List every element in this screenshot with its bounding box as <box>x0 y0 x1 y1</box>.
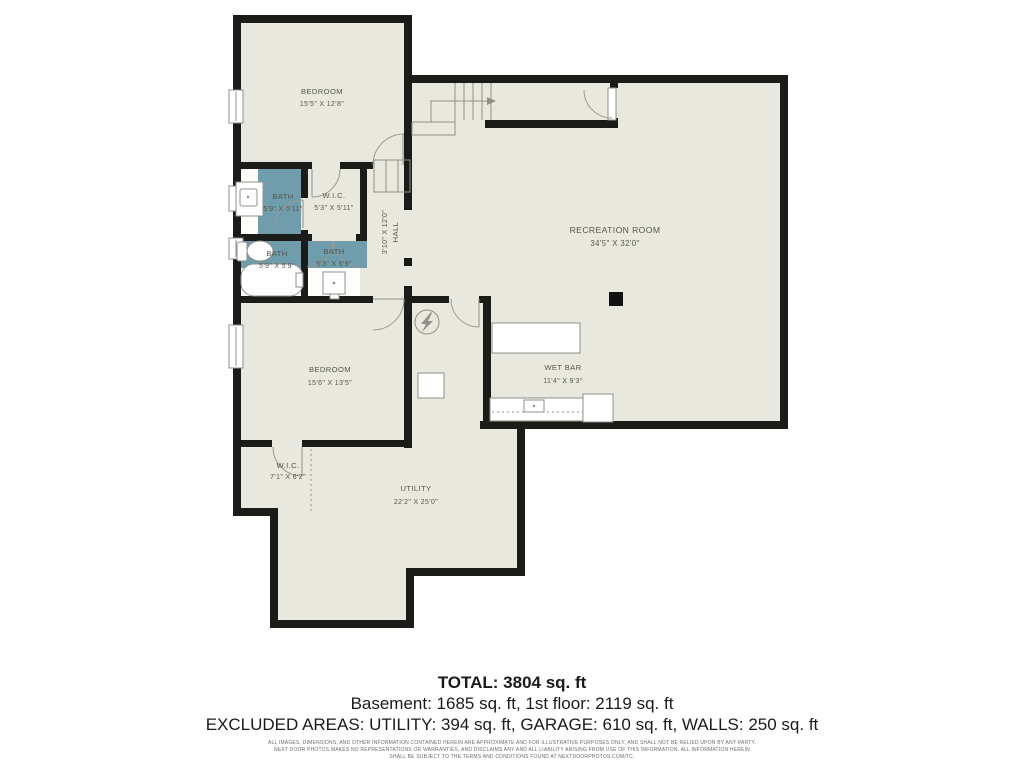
room-label: WET BAR <box>544 363 581 372</box>
disclaimer-line: NEXT DOOR PHOTOS MAKES NO REPRESENTATION… <box>0 747 1024 754</box>
opening-hall-rec2 <box>404 266 412 286</box>
room-label: BATH <box>272 192 293 201</box>
wall <box>485 120 618 128</box>
wall <box>233 440 412 447</box>
bar-sink-drain <box>533 405 535 407</box>
room-dims: 11'4" X 9'3" <box>543 378 583 385</box>
wall <box>301 234 308 300</box>
room-dims: 34'5" X 32'0" <box>590 239 639 248</box>
wall <box>480 421 788 429</box>
floor-plan-page: BEDROOM 15'5" X 12'8" BATH 5'9" X 5'11" … <box>0 0 1024 768</box>
wall <box>517 421 525 576</box>
wet-bar-island <box>492 323 580 353</box>
floor-plan-canvas: BEDROOM 15'5" X 12'8" BATH 5'9" X 5'11" … <box>0 0 1024 768</box>
room-dims: 3'10" X 12'0" <box>382 210 389 254</box>
bar-appliance <box>583 394 613 422</box>
room-label: BATH <box>266 249 287 258</box>
toilet-tank2 <box>330 294 339 299</box>
wall <box>406 568 414 628</box>
sink-drain <box>247 196 249 198</box>
tub-faucet <box>296 273 303 287</box>
room-dims: 5'9" X 5'11" <box>263 206 303 213</box>
disclaimer-line: SHALL BE SUBJECT TO THE TERMS AND CONDIT… <box>0 754 1024 761</box>
wall <box>270 620 414 628</box>
floor-areas-text: Basement: 1685 sq. ft, 1st floor: 2119 s… <box>0 693 1024 714</box>
room-label: BATH <box>323 247 344 256</box>
doorway-wic-lower <box>272 440 302 447</box>
room-label: RECREATION ROOM <box>570 225 661 235</box>
doorway-bath-upper <box>301 198 308 230</box>
wall <box>233 15 412 23</box>
excluded-areas-text: EXCLUDED AREAS: UTILITY: 394 sq. ft, GAR… <box>0 714 1024 735</box>
room-dims: 5'9" X 5'9" <box>259 263 295 270</box>
room-dims: 7'1" X 6'2" <box>270 474 306 481</box>
room-dims: 22'2" X 25'0" <box>394 499 438 506</box>
toilet-dot <box>333 282 336 285</box>
room-dims: 15'5" X 12'8" <box>300 101 344 108</box>
disclaimer: ALL IMAGES, DIMENSIONS, AND OTHER INFORM… <box>0 740 1024 761</box>
room-label: HALL <box>391 222 400 243</box>
disclaimer-line: ALL IMAGES, DIMENSIONS, AND OTHER INFORM… <box>0 740 1024 747</box>
wall <box>270 508 278 628</box>
door-leaf <box>608 88 616 120</box>
room-dims: 15'6" X 13'5" <box>308 380 352 387</box>
wall <box>406 75 788 83</box>
room-dims: 5'3" X 5'9" <box>316 261 352 268</box>
doorway-bath-lower-right <box>312 234 356 241</box>
wall <box>406 568 525 576</box>
room-label: BEDROOM <box>309 365 351 374</box>
doorway-bedroom-upper <box>373 162 404 169</box>
summary-footer: TOTAL: 3804 sq. ft Basement: 1685 sq. ft… <box>0 672 1024 761</box>
water-heater <box>418 373 444 398</box>
room-label: W.I.C. <box>322 191 345 200</box>
room-label: UTILITY <box>400 484 431 493</box>
doorway-utility <box>449 296 479 303</box>
support-column <box>609 292 623 306</box>
room-label: W.I.C. <box>276 461 299 470</box>
toilet-tank <box>237 242 247 261</box>
wall <box>780 75 788 429</box>
opening-hall-rec1 <box>404 210 412 258</box>
room-dims: 5'3" X 5'11" <box>314 205 354 212</box>
wall <box>360 162 367 240</box>
room-label: BEDROOM <box>301 87 343 96</box>
doorway-wic-upper <box>312 162 340 169</box>
total-area-text: TOTAL: 3804 sq. ft <box>0 672 1024 693</box>
